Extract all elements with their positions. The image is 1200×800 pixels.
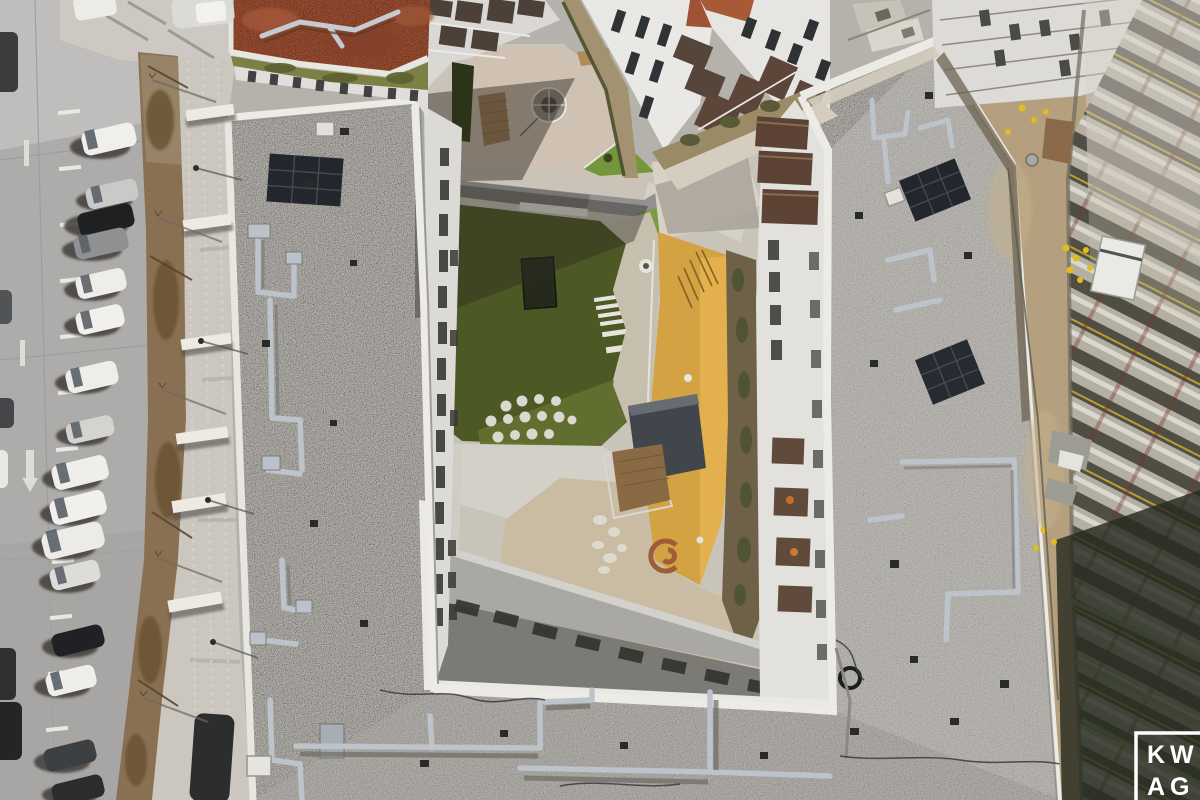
svg-text:KW: KW bbox=[1147, 741, 1199, 769]
svg-text:AG: AG bbox=[1147, 773, 1195, 800]
